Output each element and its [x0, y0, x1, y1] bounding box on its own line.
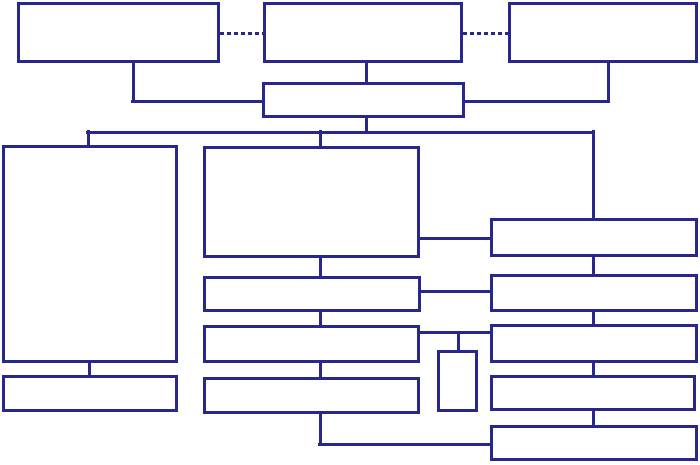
connector-distribution-bus — [86, 131, 595, 134]
connector-right-row-2-to-3 — [592, 311, 595, 325]
connector-main-to-mid-row-1 — [319, 257, 322, 277]
box-right-row-4 — [490, 375, 696, 411]
box-right-row-1 — [490, 218, 698, 257]
connector-mid-row-1-to-2 — [319, 311, 322, 326]
box-right-row-2 — [490, 274, 698, 312]
box-small-vertical — [437, 350, 478, 412]
connector-top-left-drop — [132, 63, 135, 103]
connector-mid-bottom-elbow — [318, 443, 492, 446]
connector-top-left-elbow — [131, 100, 264, 103]
connector-top-right-drop — [607, 63, 610, 103]
box-mid-row-3 — [203, 377, 420, 414]
connector-top-center-drop — [365, 63, 368, 83]
connector-bus-to-right-row-1 — [592, 130, 595, 220]
box-mid-row-2 — [203, 325, 420, 363]
box-right-row-5 — [490, 425, 698, 461]
box-left-bottom — [2, 375, 178, 412]
connector-right-row-3-to-4 — [592, 362, 595, 376]
box-right-row-3 — [490, 324, 698, 363]
connector-mid-row-2-to-right-row-3 — [419, 331, 491, 334]
box-top-center — [263, 2, 463, 63]
box-center-hub — [262, 82, 465, 118]
connector-mid-row-2-to-3 — [319, 362, 322, 378]
connector-left-tall-to-left-bottom — [88, 362, 91, 376]
connector-bus-to-main-large — [319, 130, 322, 148]
flowchart-canvas — [0, 0, 700, 465]
box-top-right — [508, 2, 698, 63]
box-mid-row-1 — [203, 276, 421, 312]
connector-dashed-top-center-to-right — [463, 32, 508, 35]
connector-main-to-right-row-1 — [419, 237, 491, 240]
connector-top-right-elbow — [464, 100, 610, 103]
connector-mid-row-1-to-right-row-2 — [420, 290, 491, 293]
box-left-tall — [2, 145, 178, 363]
connector-right-row-1-to-2 — [592, 256, 595, 275]
connector-bus-to-left-tall — [87, 130, 90, 147]
connector-mid-row-3-down — [319, 413, 322, 446]
box-top-left — [17, 2, 220, 63]
connector-dashed-top-left-to-center — [220, 32, 263, 35]
connector-right-row-4-to-5 — [592, 410, 595, 426]
box-main-large — [203, 146, 420, 258]
connector-drop-to-small-vertical — [457, 331, 460, 351]
